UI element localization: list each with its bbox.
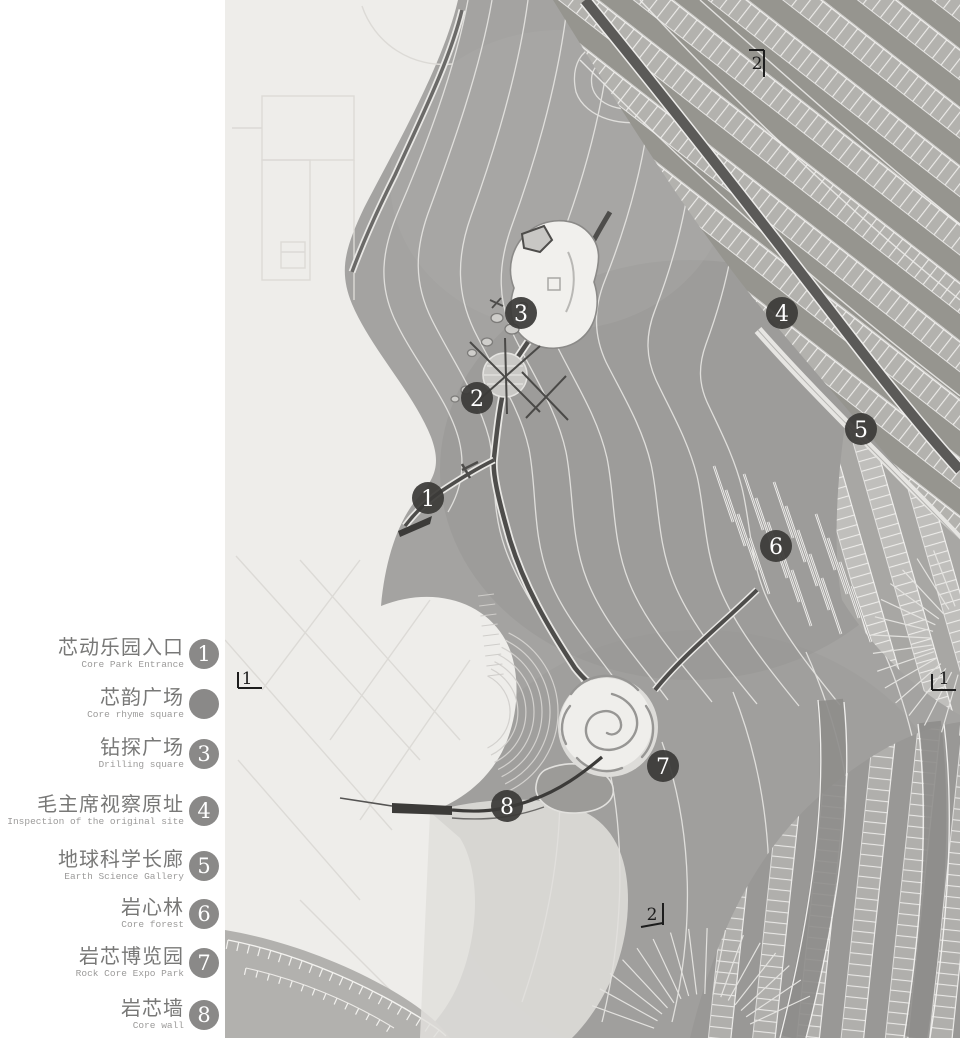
legend-label-zh: 岩芯博览园 <box>76 947 184 968</box>
legend-number-circle: 5 <box>189 851 219 881</box>
legend-label-zh: 地球科学长廊 <box>58 850 184 871</box>
legend-item-6: 岩心林Core forest6 <box>0 898 219 930</box>
legend-item-4: 毛主席视察原址Inspection of the original site4 <box>0 795 219 827</box>
legend-label-zh: 岩芯墙 <box>121 999 184 1020</box>
marker-number: 8 <box>500 795 514 820</box>
legend-number-circle: 6 <box>189 899 219 929</box>
legend-item-text: 岩芯博览园Rock Core Expo Park <box>76 947 184 979</box>
legend-label-en: Earth Science Gallery <box>58 872 184 882</box>
legend-label-zh: 毛主席视察原址 <box>7 795 184 816</box>
legend-item-1: 芯动乐园入口Core Park Entrance1 <box>0 638 219 670</box>
map-marker-6: 6 <box>760 530 792 562</box>
legend-item-text: 钻探广场Drilling square <box>98 738 184 770</box>
marker-number: 4 <box>775 302 789 327</box>
legend-label-en: Core forest <box>121 920 184 930</box>
legend-label-zh: 芯动乐园入口 <box>58 638 184 659</box>
marker-number: 2 <box>470 387 484 412</box>
legend-item-text: 岩芯墙Core wall <box>121 999 184 1031</box>
legend-label-en: Rock Core Expo Park <box>76 969 184 979</box>
legend-number-circle <box>189 689 219 719</box>
legend-item-2: 芯韵广场Core rhyme square <box>0 688 219 720</box>
legend-number-circle: 1 <box>189 639 219 669</box>
legend-item-text: 芯动乐园入口Core Park Entrance <box>58 638 184 670</box>
section-number: 1 <box>242 669 253 689</box>
section-number: 1 <box>939 669 950 689</box>
legend-label-zh: 钻探广场 <box>98 738 184 759</box>
map-marker-3: 3 <box>505 297 537 329</box>
legend-number-circle: 3 <box>189 739 219 769</box>
legend-item-text: 岩心林Core forest <box>121 898 184 930</box>
legend-item-5: 地球科学长廊Earth Science Gallery5 <box>0 850 219 882</box>
legend-number-circle: 7 <box>189 948 219 978</box>
legend-label-en: Inspection of the original site <box>7 817 184 827</box>
section-number: 2 <box>647 905 658 925</box>
legend-label-en: Core rhyme square <box>87 710 184 720</box>
legend-item-text: 芯韵广场Core rhyme square <box>87 688 184 720</box>
legend-item-text: 毛主席视察原址Inspection of the original site <box>7 795 184 827</box>
legend-item-7: 岩芯博览园Rock Core Expo Park7 <box>0 947 219 979</box>
lower-meadow <box>420 800 628 1038</box>
marker-number: 3 <box>514 302 528 327</box>
legend-item-8: 岩芯墙Core wall8 <box>0 999 219 1031</box>
legend-label-zh: 岩心林 <box>121 898 184 919</box>
marker-number: 7 <box>656 755 670 780</box>
map-marker-4: 4 <box>766 297 798 329</box>
marker-number: 1 <box>421 487 435 512</box>
marker-number: 5 <box>854 418 868 443</box>
legend-label-en: Core Park Entrance <box>58 660 184 670</box>
map-marker-5: 5 <box>845 413 877 445</box>
site-plan-map: 12345678 2112 <box>0 0 960 1038</box>
map-marker-2: 2 <box>461 382 493 414</box>
site-plan-page: 12345678 2112 芯动乐园入口Core Park Entrance1芯… <box>0 0 960 1038</box>
legend-label-zh: 芯韵广场 <box>87 688 184 709</box>
section-marker-2-top: 2 <box>749 50 764 77</box>
legend-item-text: 地球科学长廊Earth Science Gallery <box>58 850 184 882</box>
map-marker-7: 7 <box>647 750 679 782</box>
legend-item-3: 钻探广场Drilling square3 <box>0 738 219 770</box>
section-number: 2 <box>752 54 763 74</box>
marker-number: 6 <box>769 535 783 560</box>
legend-number-circle: 8 <box>189 1000 219 1030</box>
legend-label-en: Core wall <box>121 1021 184 1031</box>
legend-number-circle: 4 <box>189 796 219 826</box>
map-marker-1: 1 <box>412 482 444 514</box>
legend-label-en: Drilling square <box>98 760 184 770</box>
map-marker-8: 8 <box>491 790 523 822</box>
